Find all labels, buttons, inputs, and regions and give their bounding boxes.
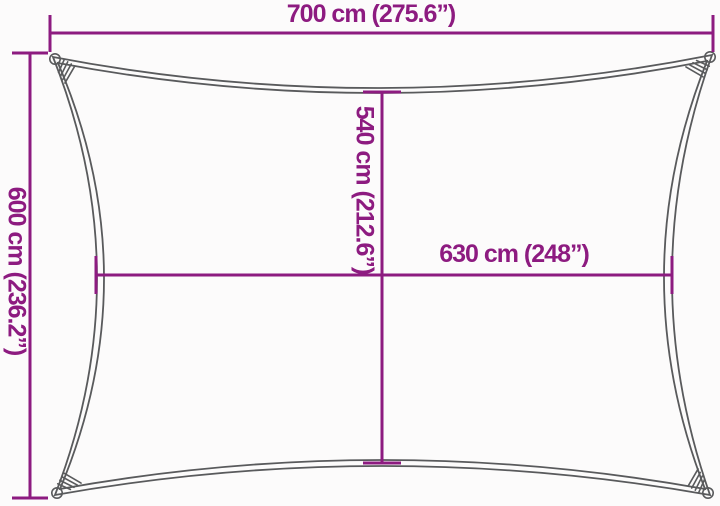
product-dimension-diagram: 700 cm (275.6”) 600 cm (236.2”) 540 cm (… (0, 0, 720, 506)
dimension-label-top-width: 700 cm (275.6”) (287, 1, 455, 29)
dimension-label-inner-width: 630 cm (248”) (439, 241, 589, 269)
dimension-label-left-height: 600 cm (236.2”) (2, 187, 30, 355)
dimension-label-inner-height: 540 cm (212.6”) (350, 106, 378, 274)
